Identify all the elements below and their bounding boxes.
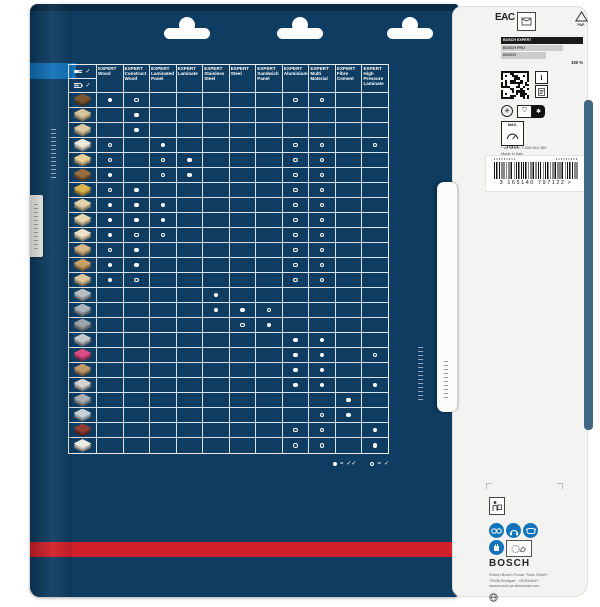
- compat-cell-empty: [177, 273, 204, 288]
- barcode-suffix: >: [568, 180, 573, 186]
- compat-cell-empty: [203, 318, 230, 333]
- aluminium-sheets-icon: [69, 333, 97, 348]
- compat-cell-empty: [336, 318, 363, 333]
- material-swatch: [74, 379, 92, 392]
- table-row-corrugated-steel: [69, 303, 388, 318]
- light-building-board-icon: [69, 228, 97, 243]
- compat-dot-suitable: [283, 168, 310, 183]
- compat-cell-empty: [203, 213, 230, 228]
- globe-icon: [489, 589, 498, 607]
- compat-cell-empty: [97, 303, 124, 318]
- material-swatch: [74, 94, 92, 107]
- compat-dot-suitable: [97, 153, 124, 168]
- compat-dot-recommended: [124, 258, 151, 273]
- compat-cell-empty: [362, 168, 388, 183]
- compat-cell-empty: [362, 183, 388, 198]
- compat-cell-empty: [203, 408, 230, 423]
- compat-cell-empty: [256, 273, 283, 288]
- compat-cell-empty: [230, 438, 257, 453]
- column-label: EXPERTFibre Cement: [337, 66, 361, 81]
- compat-cell-empty: [150, 363, 177, 378]
- column-header-laminate: EXPERTLaminate: [177, 65, 204, 93]
- compat-cell-empty: [362, 198, 388, 213]
- hang-slot-bar: [164, 28, 210, 39]
- compat-cell-empty: [256, 408, 283, 423]
- compat-cell-empty: [177, 423, 204, 438]
- compat-cell-empty: [150, 183, 177, 198]
- compat-cell-empty: [177, 93, 204, 108]
- compat-cell-empty: [362, 273, 388, 288]
- compat-cell-empty: [256, 183, 283, 198]
- legend-equals: =: [377, 461, 381, 467]
- document-glyph: [538, 88, 545, 96]
- hpl-layered-board-icon: [69, 438, 97, 453]
- spine-blue-tab: [30, 63, 76, 79]
- barcode-bars: [494, 162, 578, 179]
- compat-cell-empty: [362, 363, 388, 378]
- material-swatch: [74, 169, 92, 182]
- compat-cell-empty: [362, 288, 388, 303]
- compat-dot-recommended: [97, 258, 124, 273]
- column-label: EXPERTMulti Material: [310, 66, 334, 81]
- compat-cell-empty: [230, 378, 257, 393]
- compat-dot-suitable: [283, 243, 310, 258]
- compat-cell-empty: [150, 438, 177, 453]
- legend-equals: =: [340, 461, 344, 467]
- compat-cell-empty: [124, 363, 151, 378]
- compat-cell-empty: [150, 423, 177, 438]
- compat-dot-recommended: [124, 243, 151, 258]
- legend-hollow-meaning: ✓: [384, 460, 389, 467]
- material-swatch: [74, 124, 92, 137]
- material-swatch: [74, 184, 92, 197]
- compat-cell-empty: [336, 123, 363, 138]
- check-mark: ✓: [85, 83, 90, 89]
- compat-cell-empty: [203, 138, 230, 153]
- compat-cell-empty: [97, 333, 124, 348]
- compat-cell-empty: [336, 153, 363, 168]
- compat-dot-suitable: [283, 153, 310, 168]
- table-row-hpl-layered-board: [69, 438, 388, 453]
- bosch-red-stripe: [30, 542, 458, 557]
- compat-cell-empty: [124, 168, 151, 183]
- cordless-tool-icon: ✓: [69, 79, 96, 92]
- compat-cell-empty: [230, 243, 257, 258]
- compat-cell-empty: [309, 393, 336, 408]
- compat-dot-suitable: [283, 228, 310, 243]
- compat-dot-recommended: [336, 393, 363, 408]
- hanger-flap: [437, 182, 457, 412]
- compat-cell-empty: [97, 108, 124, 123]
- compat-cell-empty: [177, 288, 204, 303]
- compat-cell-empty: [97, 288, 124, 303]
- compat-cell-empty: [362, 408, 388, 423]
- compat-dot-recommended: [97, 228, 124, 243]
- compat-dot-recommended: [124, 183, 151, 198]
- compat-cell-empty: [256, 228, 283, 243]
- max-label: MAX.: [502, 123, 523, 127]
- compat-dot-recommended: [203, 288, 230, 303]
- compat-dot-suitable: [309, 438, 336, 453]
- compat-cell-empty: [177, 243, 204, 258]
- compat-cell-empty: [283, 408, 310, 423]
- euro-hang-slot: [387, 17, 433, 39]
- compat-cell-empty: [230, 183, 257, 198]
- compat-dot-recommended: [124, 198, 151, 213]
- compat-cell-empty: [150, 333, 177, 348]
- compat-dot-recommended: [336, 408, 363, 423]
- compat-cell-empty: [203, 153, 230, 168]
- compat-dot-suitable: [309, 198, 336, 213]
- material-swatch: [74, 424, 92, 437]
- compat-dot-recommended: [177, 168, 204, 183]
- compat-cell-empty: [283, 303, 310, 318]
- protective-gloves-icon: [489, 540, 504, 555]
- compat-cell-empty: [230, 288, 257, 303]
- barcode-microtext: [486, 156, 586, 160]
- steel-profile-icon: [69, 318, 97, 333]
- euro-hang-slot: [164, 17, 210, 39]
- column-label: EXPERTSteel: [231, 66, 249, 76]
- compat-dot-recommended: [362, 438, 388, 453]
- compat-cell-empty: [230, 408, 257, 423]
- column-header-aluminium: EXPERTAluminium: [283, 65, 310, 93]
- compat-dot-suitable: [283, 438, 310, 453]
- eye-protection-icon: [489, 523, 504, 538]
- compat-cell-empty: [203, 168, 230, 183]
- compat-cell-empty: [203, 108, 230, 123]
- max-rpm-box: MAX.: [501, 121, 524, 146]
- hpl-dark-board-icon: [69, 423, 97, 438]
- crop-mark: [486, 483, 492, 489]
- qr-code: [501, 71, 529, 99]
- compat-dot-recommended: [150, 213, 177, 228]
- column-header-wood: EXPERTWood: [97, 65, 124, 93]
- compat-dot-suitable: [309, 153, 336, 168]
- compat-cell-empty: [150, 408, 177, 423]
- compat-cell-empty: [362, 93, 388, 108]
- material-swatch: [74, 364, 92, 377]
- laminate-flooring-icon: [69, 273, 97, 288]
- compat-dot-recommended: [362, 423, 388, 438]
- compat-cell-empty: [283, 288, 310, 303]
- compat-cell-empty: [177, 138, 204, 153]
- tool-type-header: ✓✓: [69, 65, 97, 93]
- compat-dot-recommended: [203, 303, 230, 318]
- compat-dot-suitable: [309, 183, 336, 198]
- compat-cell-empty: [150, 123, 177, 138]
- compat-cell-empty: [230, 108, 257, 123]
- table-row-fibre-cement-board: [69, 393, 388, 408]
- compare-bar-bosch: BOSCH: [501, 52, 546, 59]
- table-row-aluminium-sheets: [69, 333, 388, 348]
- wood-with-metal-icon: [69, 363, 97, 378]
- hand-hazard-icon: [506, 540, 532, 557]
- compat-dot-recommended: [97, 168, 124, 183]
- legend-filled-meaning: ✓✓: [346, 460, 356, 467]
- recycling-pap-icon: PAP: [573, 11, 589, 27]
- compat-cell-empty: [203, 393, 230, 408]
- eac-mark-icon: EAC····: [495, 13, 515, 26]
- compat-cell-empty: [256, 243, 283, 258]
- bar-label: BOSCH: [501, 53, 516, 57]
- column-label: EXPERTLaminated Panel: [151, 66, 175, 81]
- compat-cell-empty: [336, 423, 363, 438]
- compat-cell-empty: [203, 438, 230, 453]
- compat-cell-empty: [203, 93, 230, 108]
- table-row-coated-chipboard: [69, 138, 388, 153]
- compat-cell-empty: [177, 123, 204, 138]
- hang-slot-bar: [277, 28, 323, 39]
- pap-label: PAP: [573, 23, 589, 27]
- material-swatch: [74, 139, 92, 152]
- read-manual-icon: [517, 12, 536, 31]
- compat-cell-empty: [309, 303, 336, 318]
- table-row-insulation-panel: [69, 348, 388, 363]
- corded-tool-icon: ✓: [69, 65, 96, 79]
- compat-cell-empty: [203, 258, 230, 273]
- vertical-microtext-right: [418, 344, 423, 400]
- compat-cell-empty: [150, 258, 177, 273]
- compat-cell-empty: [124, 303, 151, 318]
- compatibility-table: ✓✓EXPERTWoodEXPERTConstruct WoodEXPERTLa…: [68, 64, 389, 454]
- compat-cell-empty: [177, 408, 204, 423]
- corrugated-steel-icon: [69, 303, 97, 318]
- compat-cell-empty: [336, 258, 363, 273]
- softwood-panel-icon: [69, 153, 97, 168]
- column-label: EXPERTAluminium: [284, 66, 308, 76]
- column-label: EXPERTStainless Steel: [204, 66, 228, 81]
- bar-label: BOSCH EXPERT: [501, 38, 531, 42]
- material-swatch: [74, 109, 92, 122]
- barcode-microtext-right: [556, 158, 578, 160]
- compat-dot-suitable: [362, 348, 388, 363]
- compat-cell-empty: [256, 438, 283, 453]
- hardwood-icon: [69, 168, 97, 183]
- compat-dot-suitable: [309, 228, 336, 243]
- compat-cell-empty: [203, 348, 230, 363]
- blade-badge-icon: ⛉ ✱: [517, 105, 545, 118]
- euro-hang-slot: [277, 17, 323, 39]
- compat-cell-empty: [230, 423, 257, 438]
- compat-dot-suitable: [309, 258, 336, 273]
- compat-dot-recommended: [283, 378, 310, 393]
- compat-cell-empty: [177, 438, 204, 453]
- compat-cell-empty: [362, 153, 388, 168]
- compat-cell-empty: [362, 108, 388, 123]
- column-header-steel: EXPERTSteel: [230, 65, 257, 93]
- compat-dot-suitable: [97, 138, 124, 153]
- compat-dot-suitable: [309, 408, 336, 423]
- compat-dot-suitable: [283, 273, 310, 288]
- compat-dot-recommended: [177, 153, 204, 168]
- osb-board-icon: [69, 183, 97, 198]
- compat-cell-empty: [336, 198, 363, 213]
- table-legend: = ✓✓ = ✓: [282, 460, 389, 467]
- compat-cell-empty: [97, 318, 124, 333]
- compat-cell-empty: [256, 198, 283, 213]
- compat-dot-recommended: [283, 348, 310, 363]
- compat-cell-empty: [362, 333, 388, 348]
- compat-dot-suitable: [283, 138, 310, 153]
- compat-cell-empty: [230, 258, 257, 273]
- compat-dot-suitable: [97, 183, 124, 198]
- solid-wood-icon: [69, 93, 97, 108]
- compat-cell-empty: [362, 213, 388, 228]
- compat-cell-empty: [203, 333, 230, 348]
- table-row-timber-stack: [69, 108, 388, 123]
- table-row-softwood-panel: [69, 153, 388, 168]
- compat-cell-empty: [336, 363, 363, 378]
- compat-cell-empty: [203, 183, 230, 198]
- compat-cell-empty: [97, 438, 124, 453]
- table-row-steel-profile: [69, 318, 388, 333]
- compat-cell-empty: [256, 288, 283, 303]
- compat-cell-empty: [230, 198, 257, 213]
- chipboard-icon: [69, 198, 97, 213]
- compat-cell-empty: [230, 228, 257, 243]
- material-swatch: [74, 334, 92, 347]
- compat-cell-empty: [256, 108, 283, 123]
- compat-dot-suitable: [283, 198, 310, 213]
- compat-cell-empty: [336, 168, 363, 183]
- compat-cell-empty: [124, 138, 151, 153]
- compat-cell-empty: [309, 318, 336, 333]
- compat-dot-suitable: [124, 228, 151, 243]
- compat-cell-empty: [230, 273, 257, 288]
- compat-dot-suitable: [230, 318, 257, 333]
- coated-chipboard-icon: [69, 138, 97, 153]
- compat-cell-empty: [336, 273, 363, 288]
- compat-cell-empty: [256, 423, 283, 438]
- compat-cell-empty: [150, 318, 177, 333]
- compat-cell-empty: [256, 333, 283, 348]
- table-row-wood-with-metal: [69, 363, 388, 378]
- compat-cell-empty: [177, 198, 204, 213]
- compat-cell-empty: [150, 108, 177, 123]
- compat-dot-recommended: [309, 333, 336, 348]
- material-swatch: [74, 274, 92, 287]
- compat-cell-empty: [203, 378, 230, 393]
- material-swatch: [74, 409, 92, 422]
- compat-cell-empty: [124, 408, 151, 423]
- compat-dot-suitable: [362, 138, 388, 153]
- compat-cell-empty: [203, 423, 230, 438]
- compat-cell-empty: [150, 273, 177, 288]
- manufacturer-address: Robert Bosch Power Tools GmbH70538 Stutt…: [489, 572, 547, 589]
- fibre-cement-board-icon: [69, 393, 97, 408]
- compat-cell-empty: [177, 318, 204, 333]
- parquet-icon: [69, 258, 97, 273]
- compat-cell-empty: [124, 438, 151, 453]
- compat-cell-empty: [256, 348, 283, 363]
- compat-dot-recommended: [230, 303, 257, 318]
- compat-cell-empty: [177, 303, 204, 318]
- compat-cell-empty: [124, 378, 151, 393]
- compat-dot-recommended: [124, 213, 151, 228]
- reader-glyph: [492, 500, 502, 512]
- compat-cell-empty: [203, 123, 230, 138]
- compat-dot-recommended: [256, 318, 283, 333]
- material-swatch: [74, 214, 92, 227]
- compat-cell-empty: [362, 243, 388, 258]
- column-label: EXPERTWood: [98, 66, 116, 76]
- compare-value-label: 100 %: [501, 60, 583, 65]
- compat-cell-empty: [203, 363, 230, 378]
- material-swatch: [74, 199, 92, 212]
- column-label: EXPERTSandwich Panel: [257, 66, 281, 81]
- info-glyph: i: [541, 74, 543, 82]
- vertical-microtext-left: [51, 128, 56, 178]
- compat-cell-empty: [230, 348, 257, 363]
- table-row-solid-wood: [69, 93, 388, 108]
- compat-dot-suitable: [309, 93, 336, 108]
- compat-cell-empty: [309, 123, 336, 138]
- compat-cell-empty: [336, 108, 363, 123]
- compat-cell-empty: [256, 138, 283, 153]
- compat-cell-empty: [362, 123, 388, 138]
- compat-cell-empty: [97, 393, 124, 408]
- compat-dot-suitable: [150, 168, 177, 183]
- compat-cell-empty: [124, 288, 151, 303]
- column-label: EXPERTLaminate: [178, 66, 198, 76]
- info-icon: i: [535, 71, 548, 84]
- table-row-mdf-board: [69, 213, 388, 228]
- column-label: EXPERTConstruct Wood: [125, 66, 149, 81]
- bosch-logo: BOSCH: [489, 558, 530, 569]
- column-header-fibre-cement: EXPERTFibre Cement: [336, 65, 363, 93]
- material-swatch: [74, 439, 92, 452]
- address-line: Robert Bosch Power Tools GmbH: [489, 572, 547, 578]
- compat-cell-empty: [336, 333, 363, 348]
- legend-hollow-dot: [370, 462, 374, 466]
- compat-dot-recommended: [97, 93, 124, 108]
- compat-cell-empty: [256, 258, 283, 273]
- compat-cell-empty: [150, 348, 177, 363]
- compat-cell-empty: [177, 213, 204, 228]
- compat-dot-suitable: [150, 228, 177, 243]
- table-row-osb-board: [69, 183, 388, 198]
- textured-board-icon: [69, 243, 97, 258]
- legend-filled-dot: [333, 462, 337, 466]
- compat-cell-empty: [336, 243, 363, 258]
- compat-cell-empty: [256, 168, 283, 183]
- compat-cell-empty: [230, 213, 257, 228]
- side-sticker-label: [30, 195, 43, 257]
- check-mark: ✓: [85, 69, 90, 75]
- compat-cell-empty: [230, 123, 257, 138]
- table-row-textured-board: [69, 243, 388, 258]
- compat-cell-empty: [97, 123, 124, 138]
- barcode-block: 3 165140 797122>: [485, 155, 587, 192]
- compat-cell-empty: [283, 108, 310, 123]
- material-swatch: [74, 244, 92, 257]
- compat-dot-suitable: [309, 423, 336, 438]
- compat-cell-empty: [150, 393, 177, 408]
- compat-dot-recommended: [124, 108, 151, 123]
- compat-cell-empty: [256, 123, 283, 138]
- compat-cell-empty: [362, 303, 388, 318]
- material-swatch: [74, 349, 92, 362]
- compat-dot-suitable: [309, 213, 336, 228]
- compat-cell-empty: [177, 333, 204, 348]
- compat-cell-empty: [230, 153, 257, 168]
- compat-cell-empty: [124, 423, 151, 438]
- compat-dot-recommended: [283, 363, 310, 378]
- barcode-microtext-left: [494, 158, 516, 160]
- compat-dot-recommended: [97, 198, 124, 213]
- table-row-laminate-flooring: [69, 273, 388, 288]
